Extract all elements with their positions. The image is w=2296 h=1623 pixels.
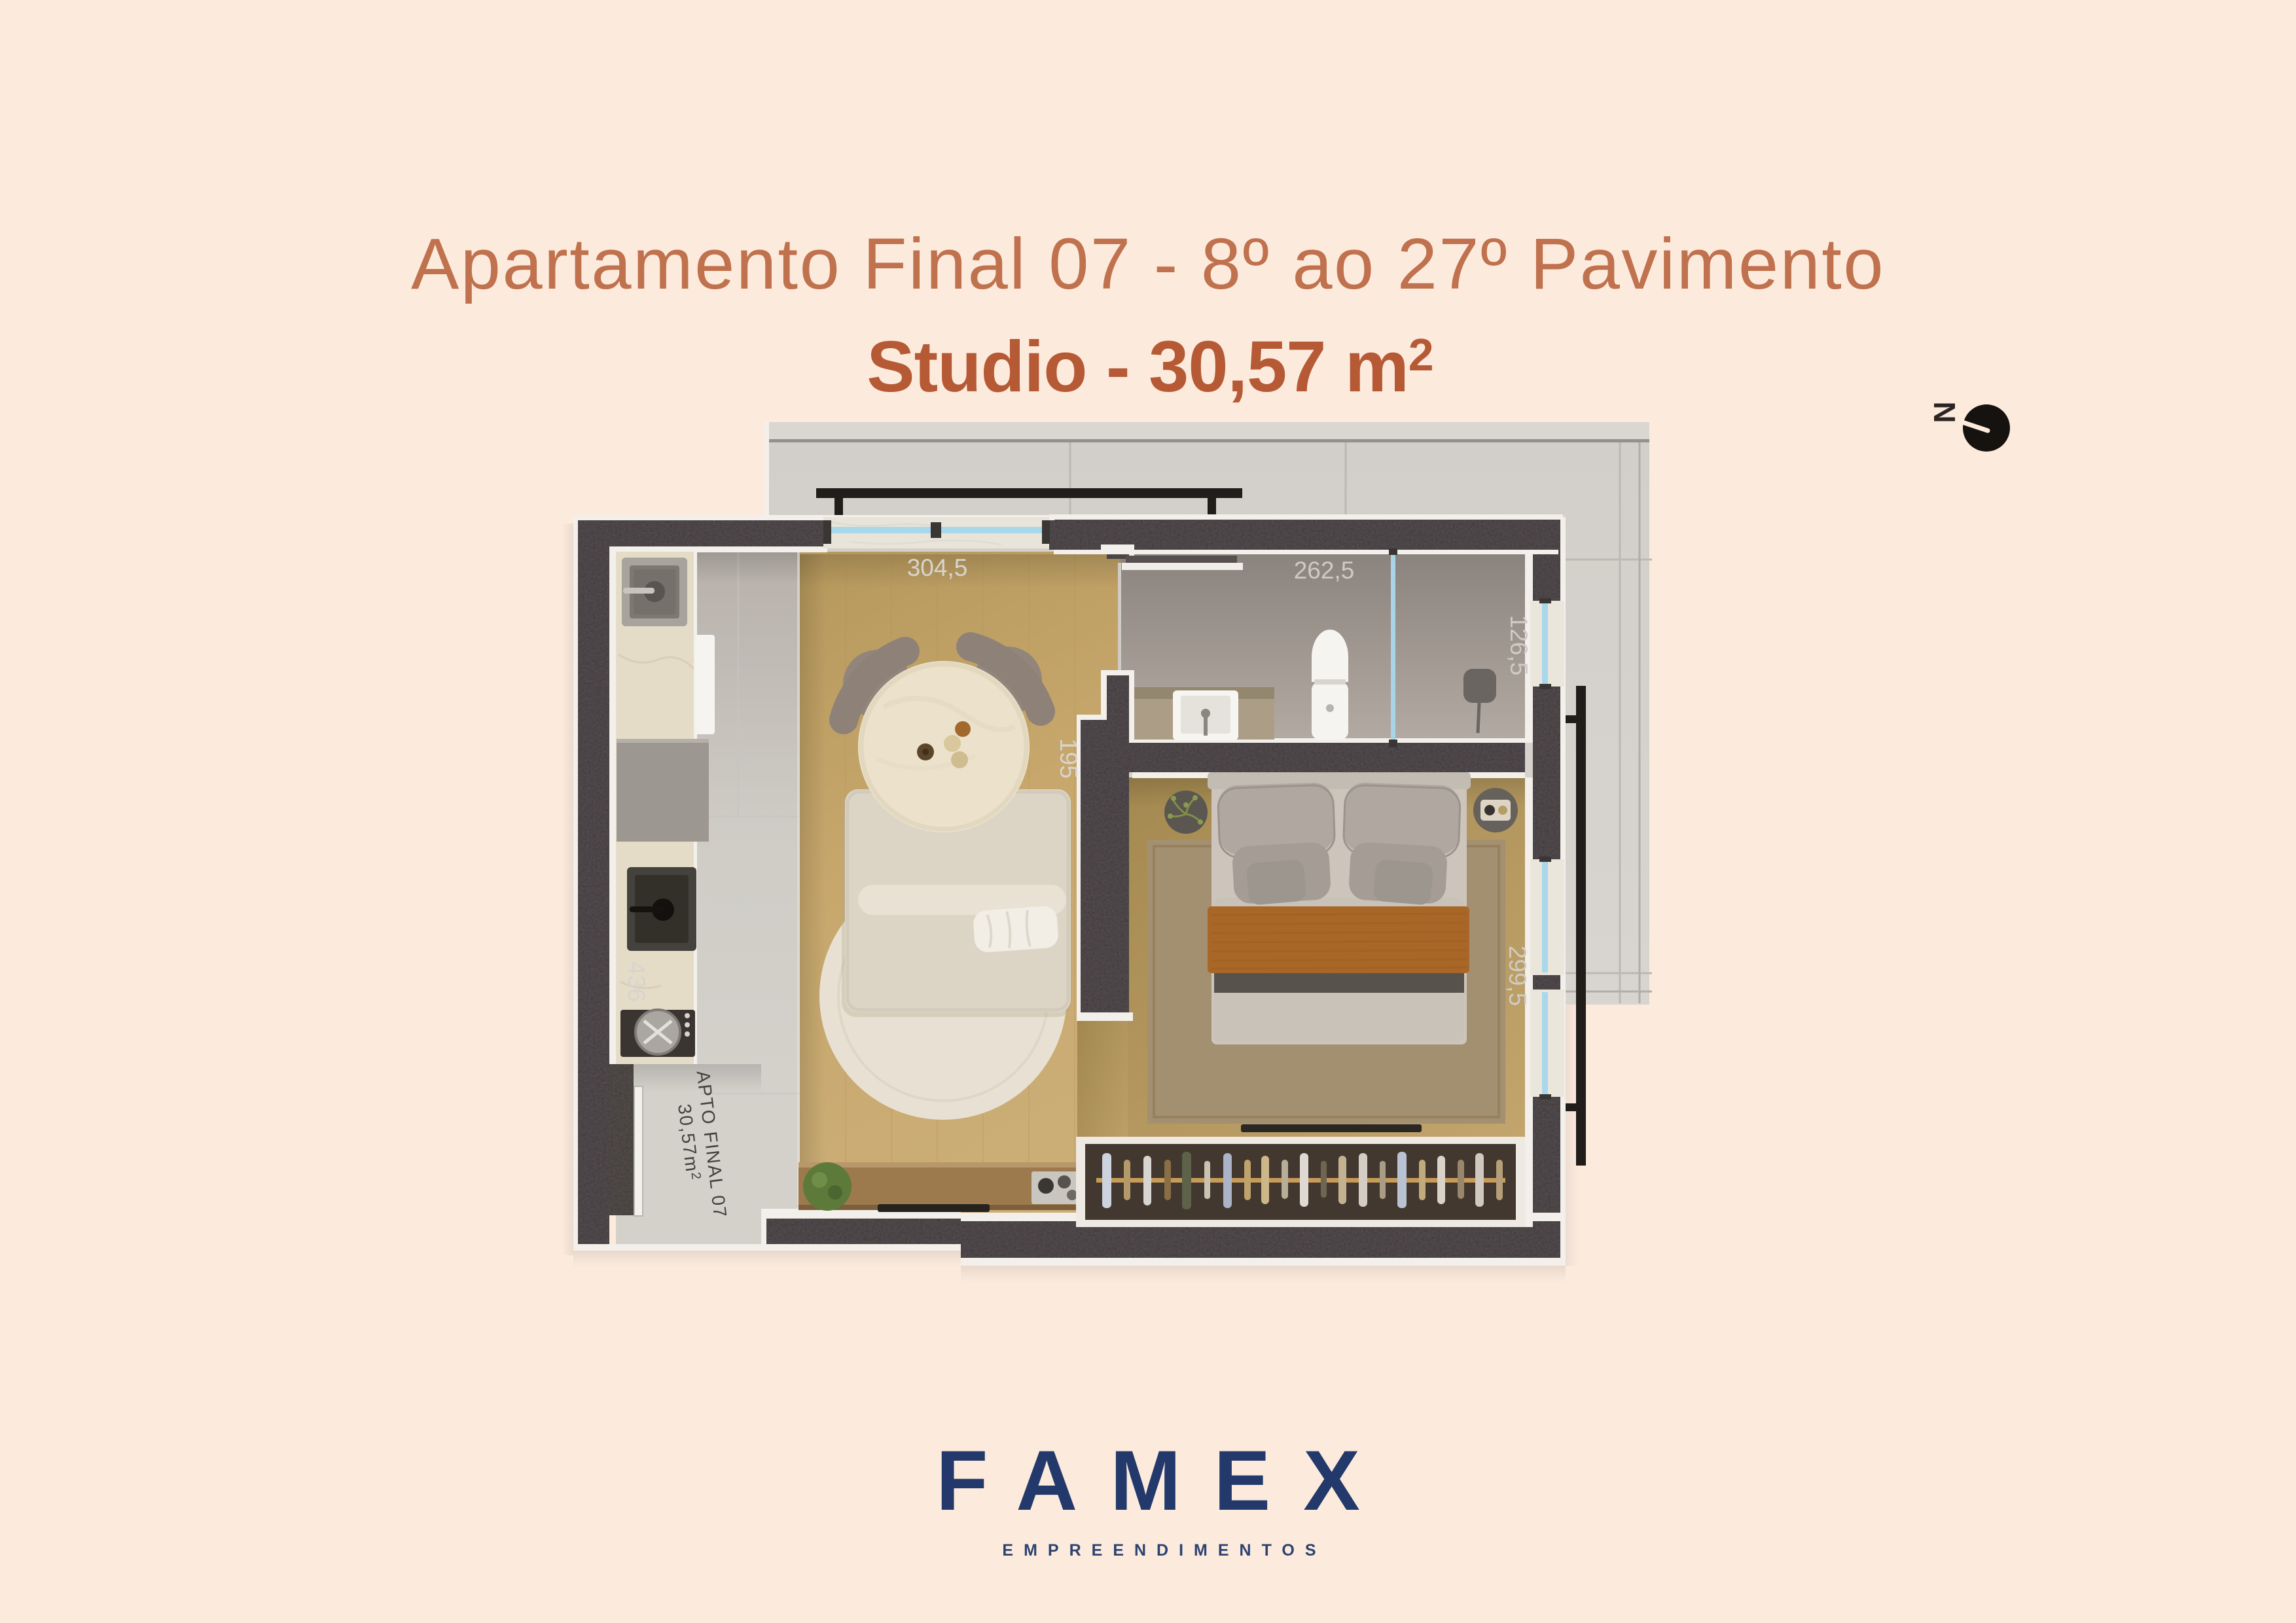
svg-text:FAMEX: FAMEX bbox=[936, 1433, 1393, 1528]
svg-text:304,5: 304,5 bbox=[907, 554, 968, 581]
svg-text:436: 436 bbox=[623, 961, 650, 1002]
svg-text:262,5: 262,5 bbox=[1294, 557, 1355, 584]
svg-text:195: 195 bbox=[1055, 738, 1082, 779]
svg-text:EMPREENDIMENTOS: EMPREENDIMENTOS bbox=[1002, 1541, 1326, 1560]
svg-text:126,5: 126,5 bbox=[1505, 615, 1532, 676]
svg-text:N: N bbox=[1928, 401, 1962, 423]
svg-text:299,5: 299,5 bbox=[1504, 946, 1531, 1007]
svg-text:Apartamento Final 07 - 8º ao 2: Apartamento Final 07 - 8º ao 27º Pavimen… bbox=[411, 224, 1885, 304]
svg-text:Studio - 30,57 m2: Studio - 30,57 m2 bbox=[867, 327, 1433, 407]
